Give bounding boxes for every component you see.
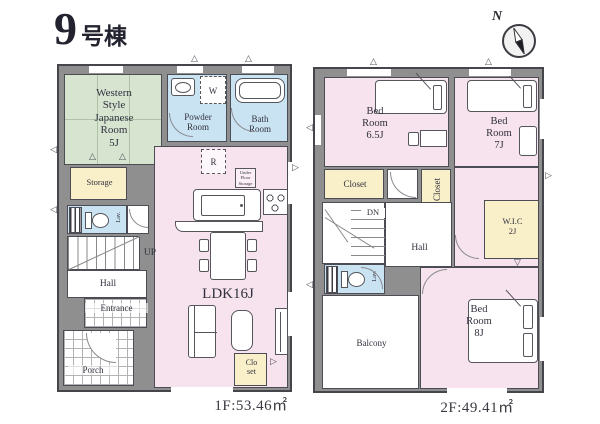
page-title: 9 号棟 (54, 4, 127, 55)
window (540, 317, 546, 361)
room-ldk: R Under Floor Storage LDK16J (154, 146, 288, 388)
floorplan-canvas: 9 号棟 N Western Style Japanese Room 5J △ … (0, 0, 600, 424)
washer-letter: W (209, 86, 218, 96)
room-closet-1f: Clo set (234, 353, 267, 386)
compass-icon (502, 24, 536, 58)
vent-mark-icon: ◁ (306, 281, 313, 290)
stairs-down-label: DN (361, 208, 385, 218)
window (242, 66, 274, 73)
stairs-up (67, 236, 140, 270)
sink-icon (171, 78, 195, 96)
vent-mark-icon: ▷ (270, 358, 277, 367)
window (177, 66, 203, 73)
stairs-up-label: UP (139, 248, 161, 259)
vent-mark-icon: ▷ (545, 172, 552, 181)
chair-icon (247, 259, 257, 272)
vent-mark-icon: ◁ (50, 206, 57, 215)
room-hall-2f-label: Hall (386, 243, 453, 254)
dining-table-icon (210, 232, 246, 280)
floor2-plan: Bed Room 6.5J Bed Room 7J Closet Closet (313, 67, 544, 393)
lavatory-1f-label: Lav. (116, 209, 122, 227)
window (89, 66, 123, 73)
kitchen-counter-bar-icon (175, 221, 263, 232)
toilet-tank-icon (85, 212, 92, 229)
fridge-letter: R (210, 157, 216, 167)
room-bedroom-7-label: Bed Room 7J (459, 116, 539, 152)
window (347, 69, 391, 76)
window (171, 387, 233, 394)
window (288, 292, 294, 336)
room-closet-1f-label: Clo set (235, 358, 268, 376)
vent-mark-icon: △ (485, 58, 492, 67)
window (447, 388, 507, 395)
shelf-icon (69, 207, 82, 233)
room-closet-a-label: Closet (325, 179, 385, 189)
room-closet-a: Closet (324, 169, 384, 199)
room-japanese: Western Style Japanese Room 5J △ △ (64, 74, 162, 165)
room-bedroom-7: Bed Room 7J (454, 77, 539, 167)
room-balcony: Balcony (322, 295, 419, 389)
hall-nook (127, 205, 149, 234)
bed-icon (467, 80, 537, 112)
washer-icon: W (200, 76, 226, 104)
toilet-bowl-icon (92, 213, 109, 228)
kitchen-counter-icon (193, 189, 261, 221)
chair-icon (199, 259, 209, 272)
room-wic-label: W.I.C 2J (485, 217, 540, 236)
floor2-area-caption: 2F:49.41㎡ (410, 396, 544, 417)
vent-mark-icon: △ (370, 58, 377, 67)
room-hall-2f: Hall (385, 202, 452, 267)
compass-needle-icon (504, 26, 534, 56)
window (315, 115, 321, 145)
low-table-icon (231, 310, 253, 351)
building-number: 9 (54, 4, 77, 55)
vent-mark-icon: ▽ (514, 259, 521, 268)
room-bedroom-8-label: Bed Room 8J (439, 304, 519, 340)
closet-nook (387, 169, 418, 199)
vent-mark-icon: △ (191, 55, 198, 64)
under-floor-storage: Under Floor Storage (235, 168, 256, 188)
chair-icon (199, 239, 209, 252)
room-powder: W Powder Room (167, 74, 227, 142)
compass-north-label: N (492, 9, 502, 25)
shelf-icon (326, 266, 338, 293)
room-porch-label: Porch (68, 365, 118, 375)
room-bedroom-65-label: Bed Room 6.5J (330, 106, 420, 142)
bathtub-icon (235, 78, 285, 103)
stove-icon (263, 189, 288, 215)
vent-mark-icon: △ (245, 55, 252, 64)
window (540, 99, 546, 139)
stairs-down: DN (322, 202, 385, 264)
floor1-plan: Western Style Japanese Room 5J △ △ W Pow… (57, 64, 292, 392)
room-hall-1f: Hall (67, 270, 147, 298)
room-entrance: Entrance (84, 298, 147, 328)
vent-mark-icon: ◁ (50, 146, 57, 155)
vent-mark-icon: ▷ (292, 164, 299, 173)
window (469, 69, 511, 76)
room-balcony-label: Balcony (323, 338, 420, 348)
sliding-door-mark-icon: △ (119, 153, 126, 162)
room-ldk-label: LDK16J (178, 286, 278, 303)
room-bedroom-65: Bed Room 6.5J (324, 77, 449, 167)
sofa-icon (188, 305, 216, 358)
room-hall-1f-label: Hall (68, 279, 148, 290)
room-storage-label: Storage (71, 178, 128, 188)
room-japanese-label: Western Style Japanese Room 5J (65, 87, 163, 149)
sliding-door-mark-icon: △ (89, 153, 96, 162)
floor1-area-caption: 1F:53.46㎡ (161, 394, 341, 415)
under-floor-storage-label: Under Floor Storage (236, 170, 255, 186)
room-wic: W.I.C 2J (484, 200, 539, 259)
room-lavatory-1f: Lav. (67, 205, 127, 234)
building-suffix: 号棟 (81, 17, 127, 51)
room-storage: Storage (70, 167, 127, 200)
chair-icon (247, 239, 257, 252)
tv-board-icon (275, 308, 288, 355)
desk-icon (420, 130, 447, 147)
toilet-tank-icon (341, 271, 348, 288)
vent-mark-icon: ◁ (306, 124, 313, 133)
room-entrance-label: Entrance (85, 303, 148, 313)
room-porch: Porch (63, 330, 134, 386)
fridge-icon: R (201, 149, 226, 174)
